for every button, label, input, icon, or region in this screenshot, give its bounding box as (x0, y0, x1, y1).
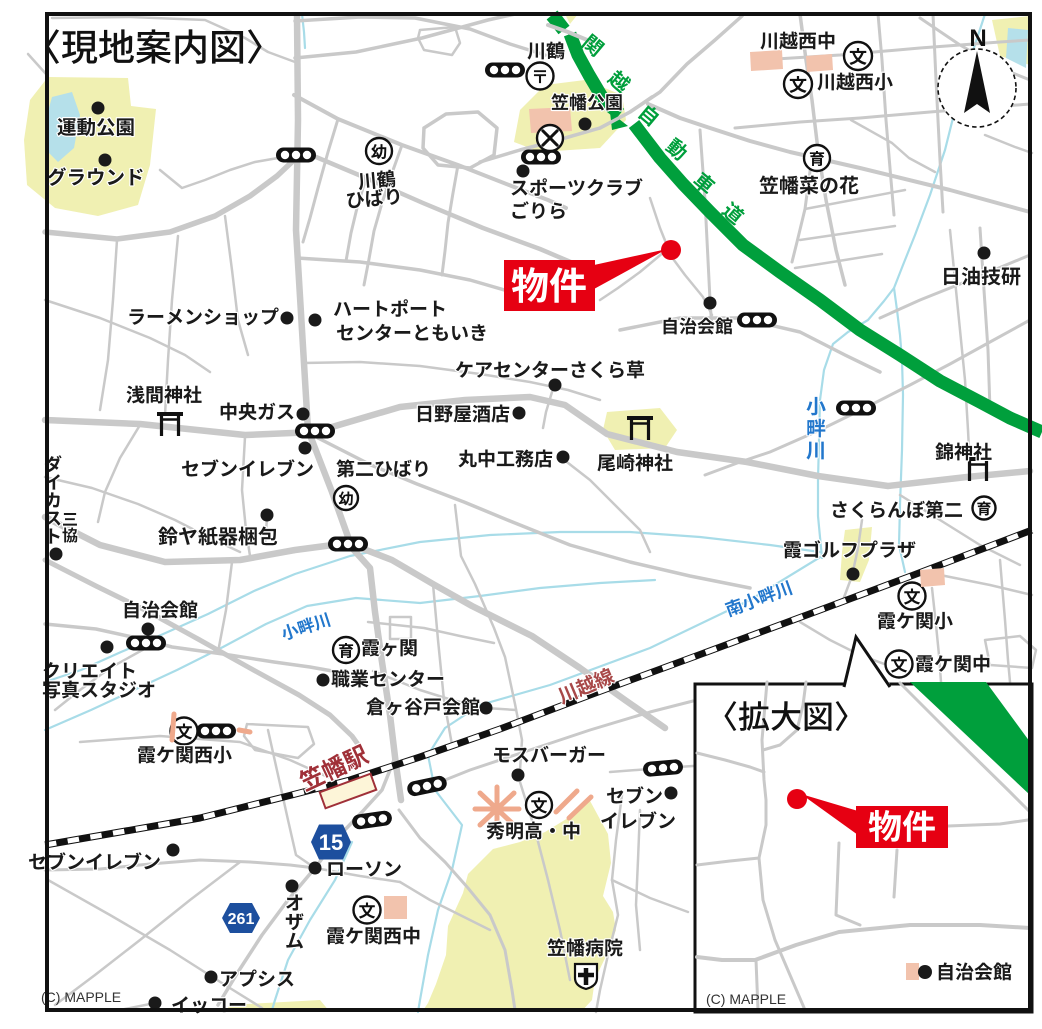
svg-text:15: 15 (319, 830, 343, 855)
svg-text:261: 261 (228, 911, 255, 928)
svg-text:(C) MAPPLE: (C) MAPPLE (41, 989, 121, 1005)
svg-text:(C) MAPPLE: (C) MAPPLE (706, 991, 786, 1007)
svg-text:N: N (969, 25, 986, 52)
